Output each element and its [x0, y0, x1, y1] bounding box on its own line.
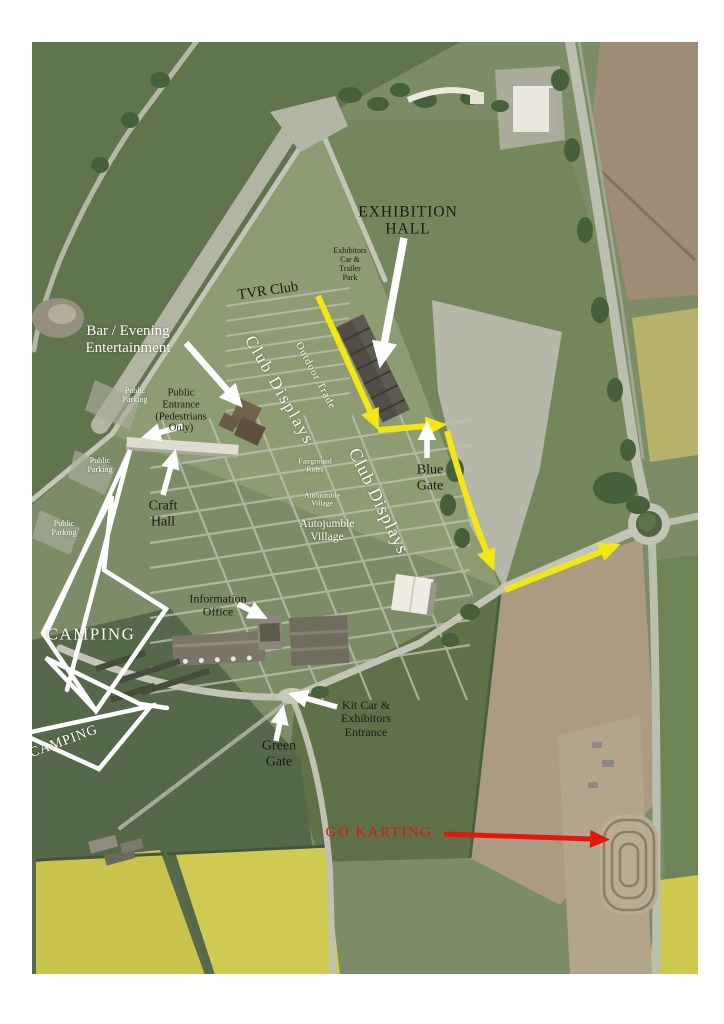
go-kart-track [600, 815, 658, 915]
shed-row-east [289, 615, 349, 666]
information-office-building [257, 615, 283, 650]
aerial-photo: EXHIBITION HALL Exhibitors Car & Trailer… [32, 42, 698, 974]
warehouse-top-right [513, 86, 553, 132]
yellow-route-arrow-2 [378, 426, 428, 430]
map-canvas: EXHIBITION HALL Exhibitors Car & Trailer… [32, 42, 698, 974]
green-gate-arrow [276, 722, 280, 741]
white-barn [391, 574, 438, 616]
road-south-of-roundabout [652, 545, 657, 974]
shed-row-west [172, 631, 265, 666]
aerial-background-svg [32, 42, 698, 974]
quarry-patch-inner [48, 304, 76, 324]
page: EXHIBITION HALL Exhibitors Car & Trailer… [0, 0, 724, 1024]
